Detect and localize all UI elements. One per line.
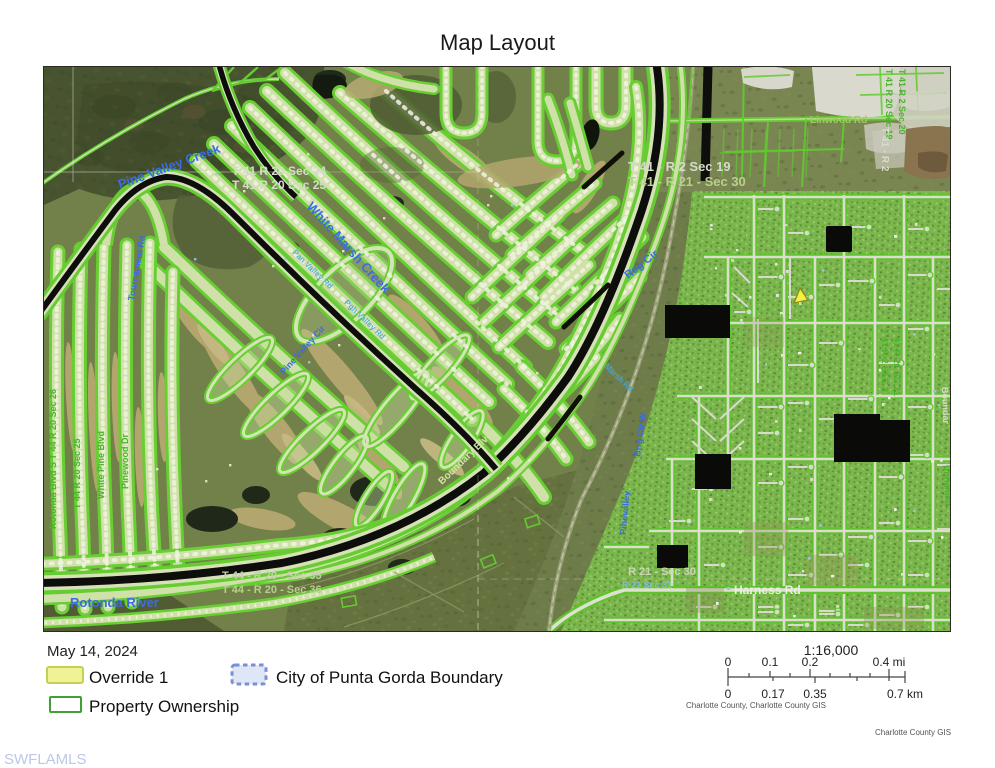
svg-text:0.35: 0.35 [803,687,827,701]
svg-text:0: 0 [725,687,732,701]
svg-text:R 21 - Sec 30: R 21 - Sec 30 [628,566,696,578]
svg-text:R 21 Sec 31: R 21 Sec 31 [622,580,672,590]
svg-text:T 41 - R 2: T 41 - R 2 [879,127,890,172]
svg-text:Linwood Rd: Linwood Rd [810,115,867,126]
svg-text:White Pine Blvd: White Pine Blvd [96,431,106,499]
svg-text:T 41 R 20 Sec 24: T 41 R 20 Sec 24 [232,164,326,178]
svg-text:Rotonda River: Rotonda River [70,595,159,610]
svg-text:0.1: 0.1 [762,655,779,669]
svg-text:0.7 km: 0.7 km [887,687,923,701]
svg-text:Boundar: Boundar [940,387,950,425]
svg-text:T 41 - R 21 - Sec 30: T 41 - R 21 - Sec 30 [628,174,746,189]
svg-text:T 41 R 21 SC 21: T 41 R 21 SC 21 [892,329,902,396]
svg-text:0: 0 [725,655,732,669]
svg-text:T 41 R 20 Sec 25: T 41 R 20 Sec 25 [232,178,326,192]
svg-text:0.17: 0.17 [761,687,785,701]
svg-text:T 44 - R 20 - Sec 35: T 44 - R 20 - Sec 35 [222,570,322,582]
svg-text:T 44 - R 20 - Sec 36: T 44 - R 20 - Sec 36 [222,584,322,596]
svg-text:T 41 R 2 SEC 2: T 41 R 2 SEC 2 [880,329,890,392]
svg-text:Harness Rd: Harness Rd [734,583,801,597]
svg-text:T 41 - R 2 Sec 19: T 41 - R 2 Sec 19 [628,159,731,174]
svg-text:0.4 mi: 0.4 mi [873,655,906,669]
svg-text:0.2: 0.2 [802,655,819,669]
svg-text:Rotonda Blvd S T 44 R 20 Se: Rotonda Blvd S T 44 R 20 Sec 26 [48,389,58,529]
svg-text:T 41 R 2 Sec 20: T 41 R 2 Sec 20 [897,69,907,135]
svg-text:Pinewood Dr: Pinewood Dr [120,434,130,489]
svg-text:T 44 R 20 Sec 25: T 44 R 20 Sec 25 [72,438,82,509]
